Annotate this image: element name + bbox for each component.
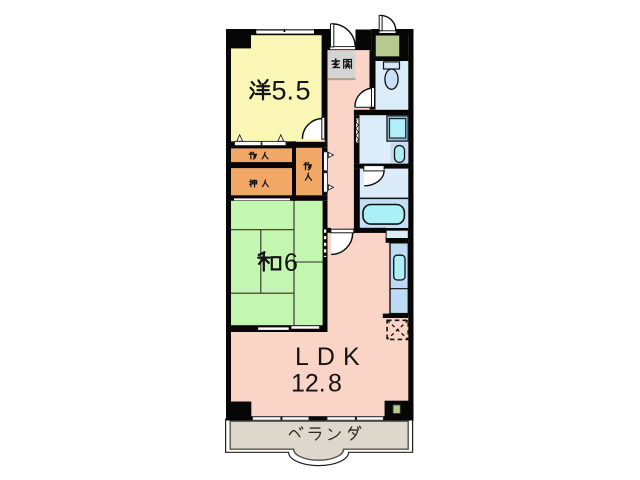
- svg-text:5: 5: [296, 76, 311, 106]
- svg-text:LDK: LDK: [295, 343, 368, 371]
- svg-text:5.: 5.: [272, 76, 295, 106]
- svg-text:12.: 12.: [291, 370, 326, 398]
- svg-text:8: 8: [328, 370, 342, 398]
- svg-text:6: 6: [284, 249, 298, 277]
